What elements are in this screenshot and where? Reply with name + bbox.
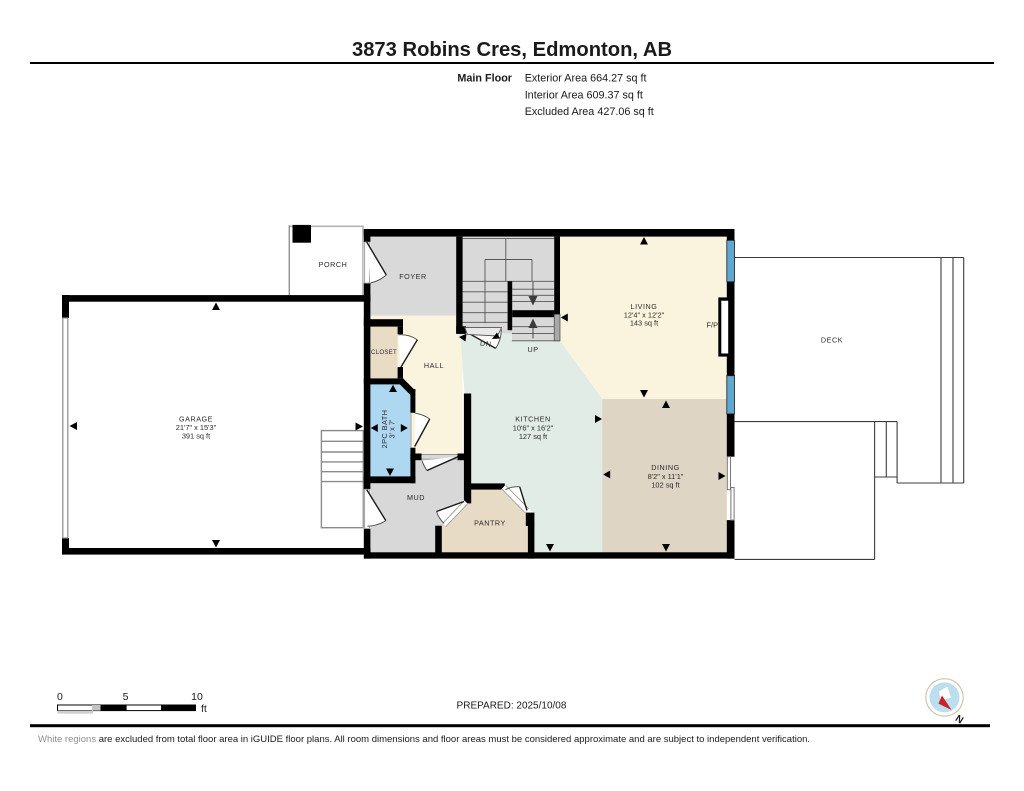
svg-text:0: 0: [57, 691, 63, 703]
svg-text:DN: DN: [480, 338, 493, 349]
svg-text:UP: UP: [527, 345, 538, 354]
svg-text:HALL: HALL: [424, 361, 444, 370]
svg-text:3873 Robins Cres, Edmonton, AB: 3873 Robins Cres, Edmonton, AB: [352, 39, 672, 61]
svg-text:DINING: DINING: [651, 463, 679, 472]
svg-text:PREPARED: 2025/10/08: PREPARED: 2025/10/08: [457, 701, 567, 712]
svg-text:PANTRY: PANTRY: [474, 518, 506, 527]
svg-text:143 sq ft: 143 sq ft: [630, 319, 658, 328]
svg-text:Interior Area 609.37 sq ft: Interior Area 609.37 sq ft: [525, 89, 643, 101]
svg-text:DECK: DECK: [821, 336, 843, 345]
svg-text:3' x 7': 3' x 7': [388, 419, 397, 438]
svg-text:White regions are excluded fro: White regions are excluded from total fl…: [38, 734, 810, 745]
svg-text:MUD: MUD: [407, 493, 425, 502]
svg-text:127 sq ft: 127 sq ft: [519, 432, 547, 441]
svg-text:ft: ft: [201, 703, 207, 715]
svg-text:Main Floor: Main Floor: [457, 73, 512, 85]
svg-text:10: 10: [191, 691, 203, 703]
svg-text:Exterior Area 664.27 sq ft: Exterior Area 664.27 sq ft: [525, 73, 647, 85]
svg-text:PORCH: PORCH: [319, 260, 348, 269]
svg-text:391 sq ft: 391 sq ft: [182, 432, 210, 441]
svg-text:5: 5: [123, 691, 129, 703]
svg-text:FOYER: FOYER: [399, 272, 427, 281]
svg-text:Excluded Area 427.06 sq ft: Excluded Area 427.06 sq ft: [525, 106, 654, 118]
svg-text:102 sq ft: 102 sq ft: [651, 480, 679, 489]
svg-text:CLOSET: CLOSET: [371, 349, 397, 356]
svg-text:F/P: F/P: [707, 320, 719, 329]
